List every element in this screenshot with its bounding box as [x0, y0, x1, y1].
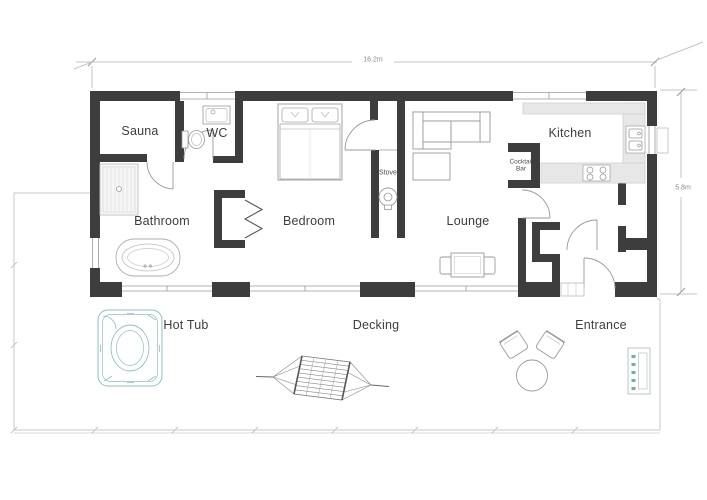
coffee-table [413, 153, 450, 180]
room-label-kitchen: Kitchen [548, 126, 591, 140]
kitchen-fixtures [523, 103, 645, 183]
room-label-sauna: Sauna [121, 124, 158, 138]
floor-plan-drawing [0, 0, 707, 500]
cooktop [583, 165, 610, 181]
dining-table-set [440, 253, 495, 277]
hot-tub-fixture [98, 310, 162, 386]
outdoor-label-hot-tub: Hot Tub [163, 318, 208, 332]
bed [278, 104, 342, 180]
round-table [517, 360, 548, 391]
dimension-height-label: 5.8m [675, 185, 691, 192]
floor-plan: Sauna WC Bathroom Bedroom Lounge Kitchen… [0, 0, 707, 500]
room-label-bedroom: Bedroom [283, 214, 335, 228]
entrance-step [561, 283, 584, 296]
fixture-label-cocktail-bar: Cocktail Bar [504, 159, 538, 174]
sofa [413, 112, 490, 149]
wood-stove [379, 188, 397, 210]
fixture-label-stove: Stove [379, 170, 397, 177]
kitchen-sink [626, 126, 645, 153]
patio-set [499, 331, 564, 391]
closet-bifold-door [245, 200, 262, 238]
outdoor-label-entrance: Entrance [575, 318, 627, 332]
bathtub [116, 239, 180, 276]
room-label-wc: WC [206, 126, 227, 140]
room-label-lounge: Lounge [447, 214, 490, 228]
dimension-width-label: 16.2m [363, 57, 382, 64]
toilet [182, 131, 205, 149]
shower [100, 164, 138, 215]
window-box [657, 128, 668, 153]
wc-sink [203, 106, 230, 124]
outdoor-label-decking: Decking [353, 318, 400, 332]
bench-planter [628, 348, 650, 394]
hammock [256, 356, 389, 400]
room-label-bathroom: Bathroom [134, 214, 190, 228]
